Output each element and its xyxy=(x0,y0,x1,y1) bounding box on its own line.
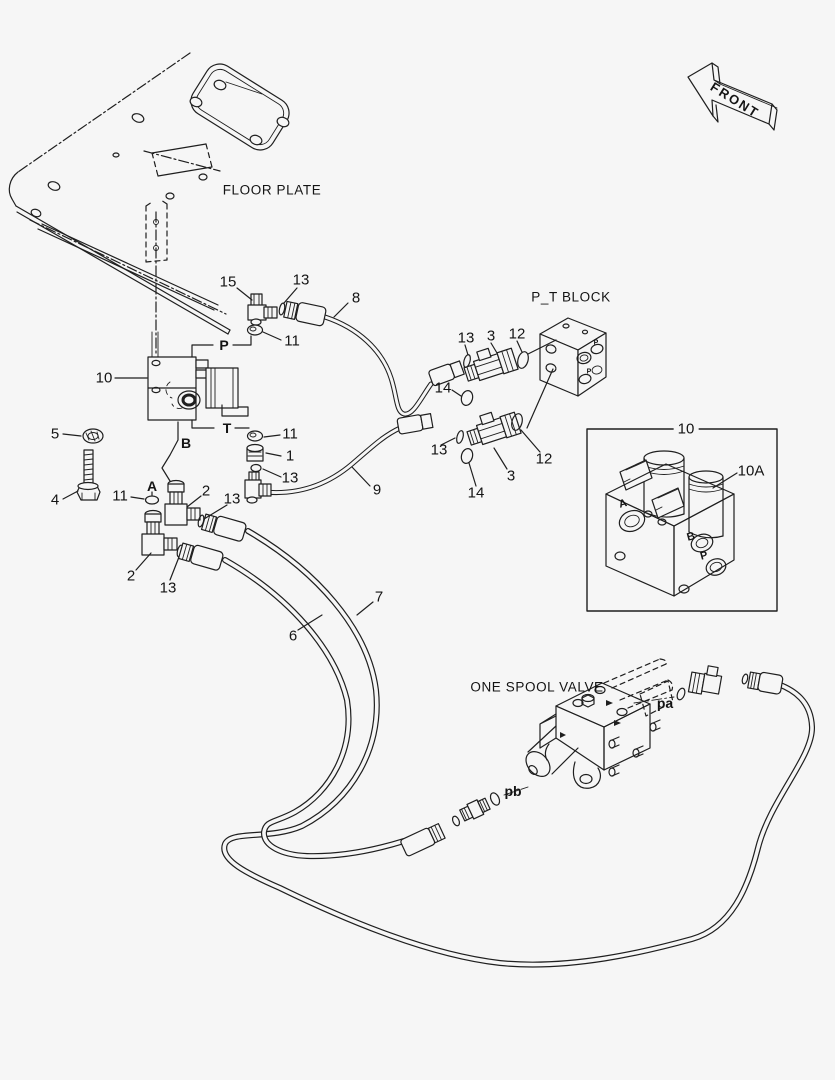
one-spool-valve-drawing xyxy=(521,659,673,788)
pt-block-drawing xyxy=(540,318,606,396)
hose-8 xyxy=(325,317,431,414)
bolt-4 xyxy=(77,450,100,500)
valve-block-10 xyxy=(148,357,248,420)
hose-9 xyxy=(264,428,400,493)
grommet-5 xyxy=(83,429,103,443)
hose-8-end-fitting-tee xyxy=(428,360,464,386)
front-direction-arrow xyxy=(688,63,777,130)
hose-6-end-fitting xyxy=(178,541,224,571)
elbow-2-upper xyxy=(165,481,200,526)
hose-7 xyxy=(224,531,812,965)
o-ring-12-upper xyxy=(516,350,530,369)
hose-8-end-fitting-top xyxy=(284,299,327,326)
o-ring-14-upper xyxy=(460,389,475,406)
pb-fitting-chain xyxy=(400,787,528,857)
parts-diagram-page: FLOOR PLATEP_T BLOCKONE SPOOL VALVEFRONT… xyxy=(0,0,835,1080)
inset-detail-box xyxy=(587,429,777,611)
fitting-15-elbow xyxy=(248,294,277,325)
o-ring-13-tee-lower xyxy=(455,430,464,444)
diagram-line-art xyxy=(0,0,835,1080)
o-ring-a xyxy=(146,496,159,504)
washer-11-t xyxy=(248,431,263,441)
o-ring-13-t xyxy=(251,465,261,472)
o-ring-14-lower xyxy=(460,447,475,464)
washer-11-top xyxy=(248,325,263,335)
elbow-fitting-t xyxy=(245,472,271,503)
pa-fitting-chain xyxy=(634,663,783,703)
fitting-1 xyxy=(247,445,263,462)
